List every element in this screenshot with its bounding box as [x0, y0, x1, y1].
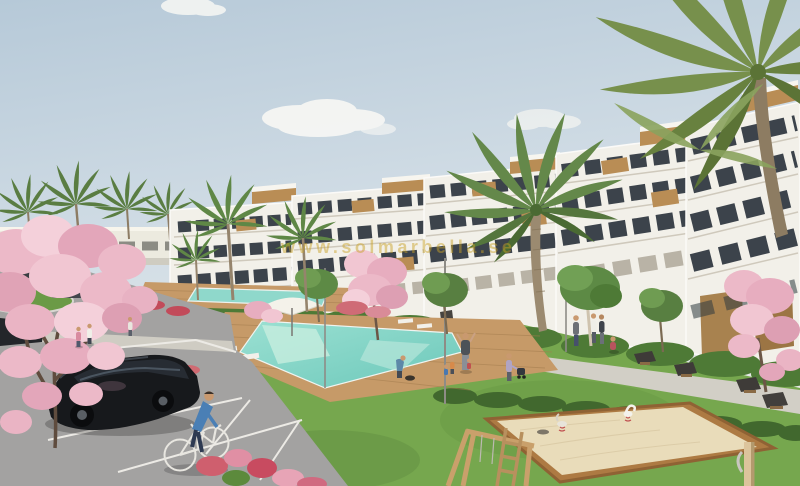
- sand-toy: [537, 430, 549, 435]
- stroller: [517, 368, 525, 375]
- render-image: www.solmarbella.se: [0, 0, 800, 486]
- dog: [405, 375, 415, 380]
- child: [467, 359, 471, 370]
- child: [444, 365, 448, 376]
- child: [450, 357, 455, 374]
- watermark: www.solmarbella.se: [280, 237, 515, 257]
